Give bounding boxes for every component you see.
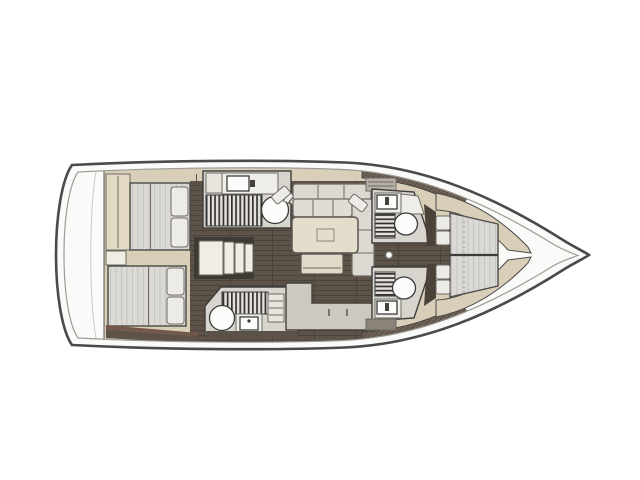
pillow <box>436 265 450 279</box>
faucet <box>385 303 389 311</box>
washbasin <box>240 317 258 330</box>
stair-step <box>235 243 244 273</box>
saloon-table <box>292 217 358 253</box>
pillow <box>436 216 450 230</box>
bench-seat <box>301 254 343 274</box>
stair-step <box>245 244 253 272</box>
toilet <box>395 213 418 235</box>
companionway <box>194 237 254 279</box>
toilet <box>210 306 235 331</box>
aft-head-lower <box>205 287 298 337</box>
aft-cabin-lower <box>106 266 198 344</box>
shower-grate <box>375 214 395 238</box>
faucet-dot <box>247 319 250 322</box>
pillow <box>171 187 188 216</box>
faucet <box>385 197 389 205</box>
toilet <box>393 277 416 299</box>
head-cabinet <box>206 173 222 193</box>
locker-band <box>366 319 396 330</box>
faucet <box>250 180 255 187</box>
pillow <box>167 297 184 324</box>
aft-cabin-upper <box>106 174 190 250</box>
shower-grate <box>206 195 262 226</box>
pillow <box>436 231 450 245</box>
transom-step <box>106 251 126 265</box>
washbasin <box>227 176 249 191</box>
stair-step <box>199 241 223 275</box>
cabinet-band <box>206 331 298 337</box>
floor-plan-canvas <box>0 0 640 480</box>
pillow <box>167 268 184 295</box>
door-knob <box>386 252 392 258</box>
pillow <box>436 280 450 294</box>
settee-seat <box>293 199 352 217</box>
pillow <box>171 218 188 247</box>
shower-grate <box>375 272 395 296</box>
stair-step <box>224 242 234 274</box>
